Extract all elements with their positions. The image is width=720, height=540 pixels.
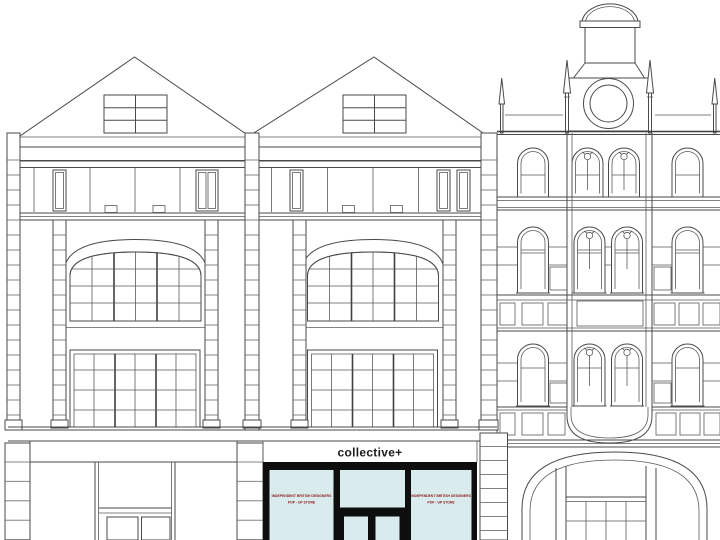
architectural-elevation: collective+ INDEPENDENT BRITISH DESIGNER… [0,0,720,540]
bow-oriel-base [567,407,652,443]
entrance-arch [522,452,707,540]
spire-icon [564,60,571,133]
gable-roofs [20,57,483,136]
panel-band-lower [500,413,720,435]
attic-window [343,95,406,133]
storefront: collective+ INDEPENDENT BRITISH DESIGNER… [263,441,477,540]
spire-icon [647,60,654,133]
promo-line1: INDEPENDENT BRITISH DESIGNERS [272,494,332,498]
pilasters [5,133,498,430]
elevation-drawing: collective+ INDEPENDENT BRITISH DESIGNER… [0,0,720,540]
storefront-window-right [411,470,472,540]
storefront-transom [340,470,405,508]
storefront-window-left [270,470,334,540]
window-bay [64,240,207,428]
door-leaf [107,517,138,540]
clock-face-inner [590,85,627,122]
right-facade [497,132,720,540]
fascia-sign: collective+ [263,441,477,462]
attic-window [104,95,167,133]
right-building-quoins [480,433,508,540]
storefront-door-right [376,517,400,540]
promo-line2: POP - UP STORE [427,501,455,505]
window-bay [302,240,445,428]
door-leaf [142,517,171,540]
left-shop [5,441,263,540]
upper-floors [5,133,498,430]
clock-face-outer [584,79,634,129]
clock-tower [567,4,650,131]
spire-icon [499,78,505,133]
fascia-sign-text: collective+ [337,446,402,460]
promo-line1: INDEPENDENT BRITISH DESIGNERS [411,494,471,498]
storefront-door-left [344,517,368,540]
promo-line2: POP - UP STORE [288,501,316,505]
shop-lintel [30,441,237,462]
panel-band-upper [500,301,720,326]
right-building [497,4,720,540]
spire-icon [712,78,718,133]
shop-door [95,462,175,540]
